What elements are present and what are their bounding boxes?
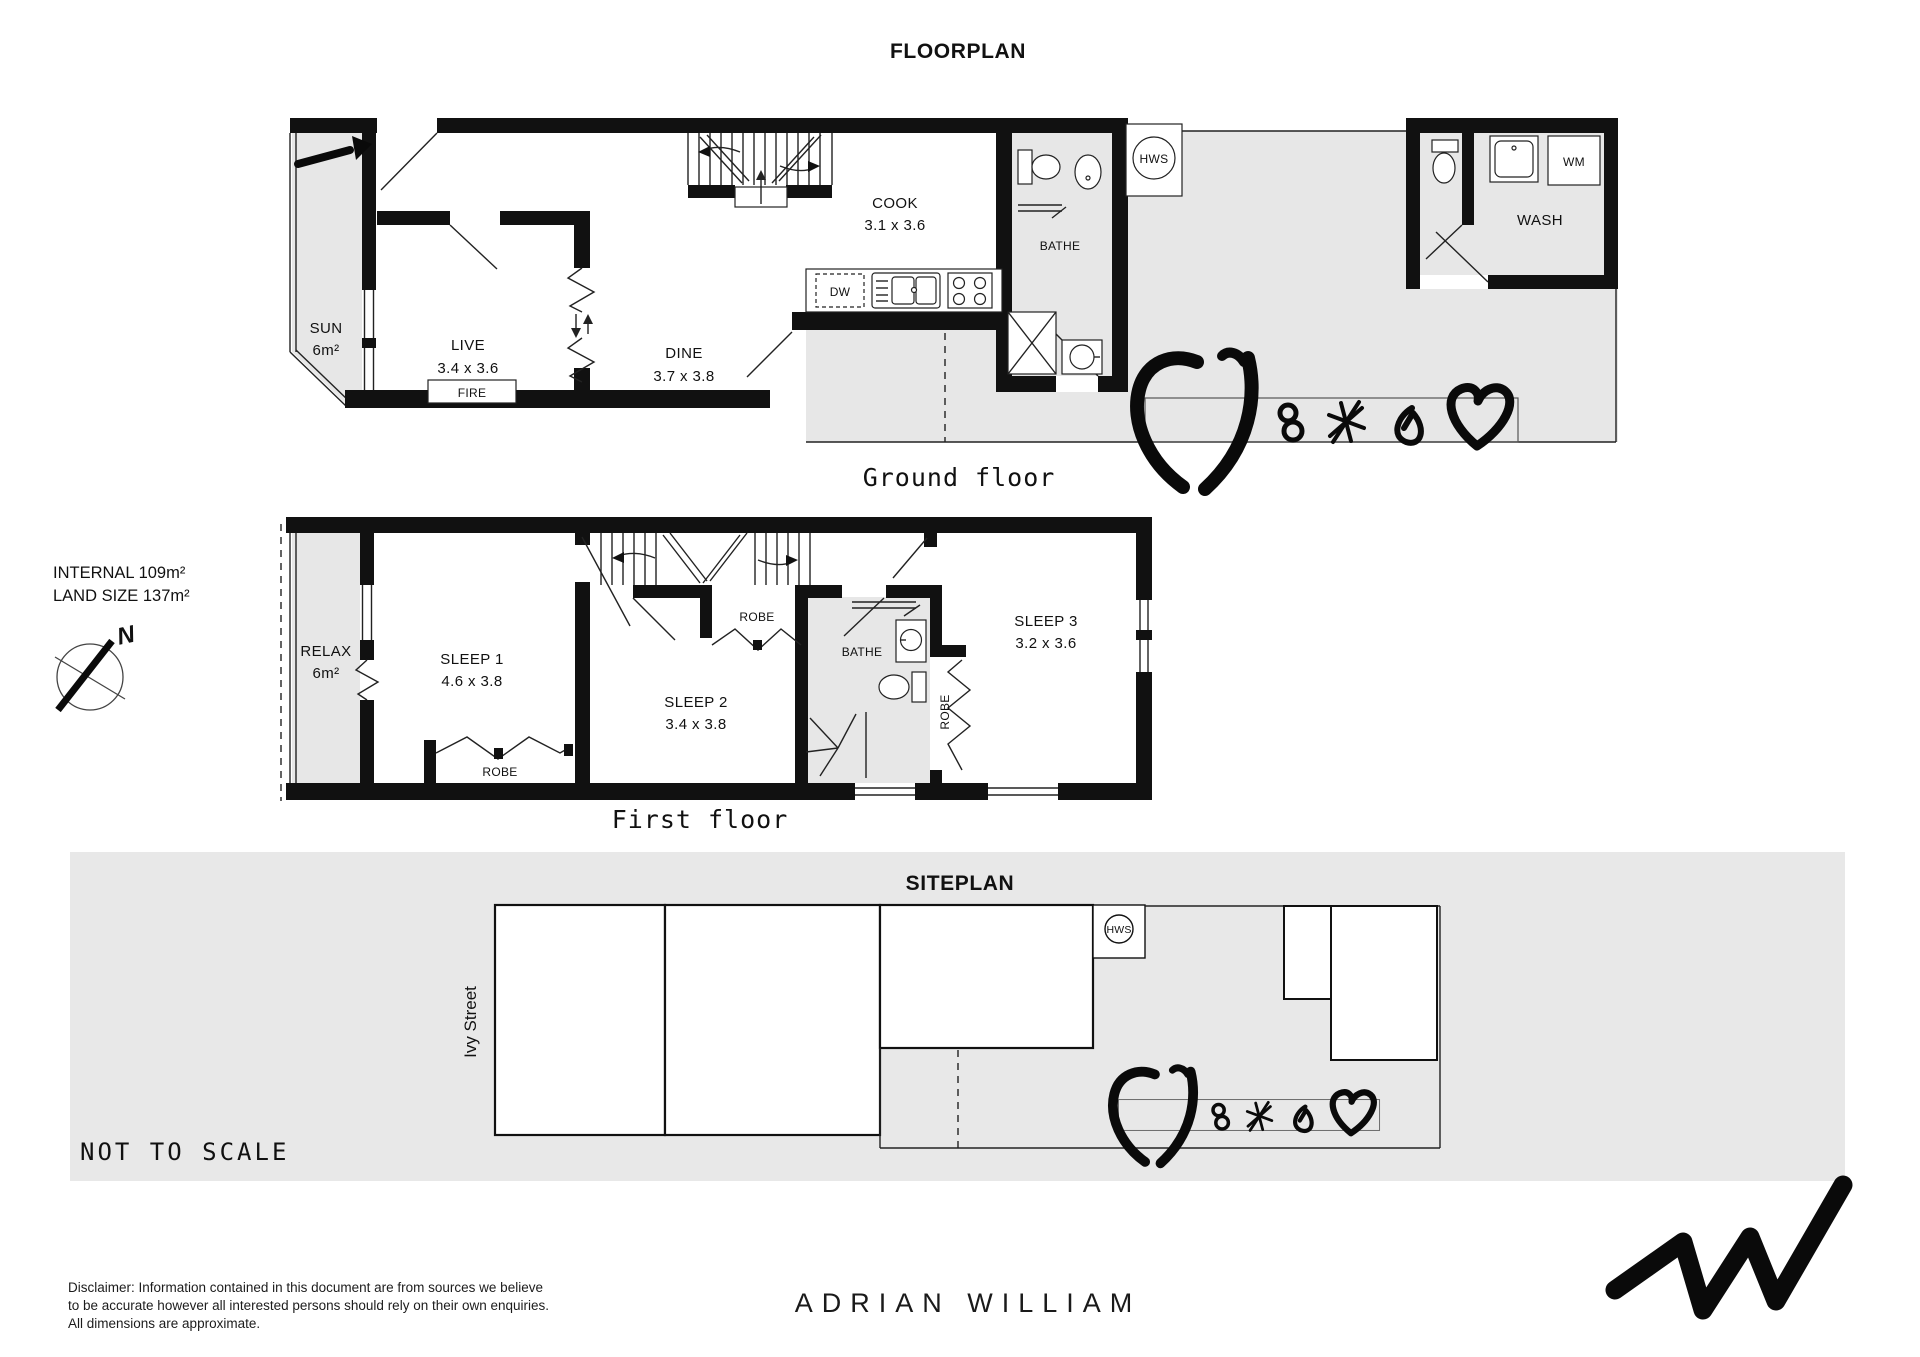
ground-floor-plan: DW (290, 118, 1618, 492)
not-to-scale-label: NOT TO SCALE (80, 1138, 289, 1166)
area-summary: INTERNAL 109m² LAND SIZE 137m² (53, 564, 190, 605)
room-label-wash: WASH (1517, 212, 1563, 229)
room-label-sun: SUN (310, 320, 343, 337)
ground-floor-caption: Ground floor (863, 463, 1056, 492)
land-size-label: LAND SIZE 137m² (53, 587, 190, 605)
dim-label-sleep2: 3.4 x 3.8 (665, 716, 726, 733)
fireplace-label: FIRE (458, 386, 487, 400)
fireplace: FIRE (428, 380, 516, 403)
washing-machine-label: WM (1563, 155, 1585, 169)
courtyard-area (806, 330, 996, 442)
live-door-leaf (450, 225, 497, 269)
room-label-sleep3: SLEEP 3 (1014, 613, 1077, 630)
room-label-cook: COOK (872, 195, 918, 212)
first-floor-caption: First floor (612, 805, 789, 834)
site-subject-house (880, 905, 1093, 1048)
room-label-sleep1: SLEEP 1 (440, 651, 503, 668)
dine-courtyard-door-leaf (747, 332, 792, 377)
room-label-sleep2: SLEEP 2 (664, 694, 727, 711)
room-label-dine: DINE (665, 345, 702, 362)
rear-yard-area (1406, 289, 1618, 442)
siteplan: SITEPLAN Ivy Street HWS NOT TO SCALE (70, 852, 1845, 1181)
page-title: FLOORPLAN (890, 40, 1026, 63)
robe1-label: ROBE (482, 765, 517, 779)
toilet-icon (1018, 150, 1032, 184)
dim-label-sleep1: 4.6 x 3.8 (441, 673, 502, 690)
dim-label-sleep3: 3.2 x 3.6 (1015, 635, 1076, 652)
siteplan-title: SITEPLAN (906, 872, 1015, 895)
ground-stairs (688, 133, 832, 207)
dim-label-live: 3.4 x 3.6 (437, 360, 498, 377)
area-label-relax: 6m² (312, 665, 339, 682)
internal-area-label: INTERNAL 109m² (53, 564, 186, 582)
dishwasher-label: DW (830, 285, 851, 299)
sun-room-area (292, 133, 362, 406)
compass-icon: N (55, 621, 138, 710)
hws-label: HWS (1140, 152, 1169, 166)
sleep3-door-leaf (893, 538, 927, 578)
first-floor-plan: ROBE ROBE ROBE RE (281, 517, 1152, 834)
toilet-icon-1f (912, 672, 926, 702)
site-neighbor-1 (1284, 906, 1331, 999)
front-door-leaf (381, 133, 437, 190)
room-label-relax: RELAX (300, 643, 351, 660)
floorplan-document: FLOORPLAN (0, 0, 1920, 1357)
disclaimer-line-3: All dimensions are approximate. (68, 1316, 260, 1331)
sleep1-robe: ROBE (424, 737, 573, 783)
courtyard-area2 (996, 392, 1128, 442)
basin-icon (1075, 155, 1101, 189)
dim-label-cook: 3.1 x 3.6 (864, 217, 925, 234)
wc-toilet-icon (1432, 140, 1458, 152)
robe3-label: ROBE (938, 694, 952, 729)
room-label-live: LIVE (451, 337, 485, 354)
sleep2-door-leaf (633, 598, 675, 640)
robe2-label: ROBE (739, 610, 774, 624)
brand-logo: ADRIAN WILLIAM (795, 1288, 1142, 1318)
disclaimer-line-2: to be accurate however all interested pe… (68, 1298, 549, 1313)
room-label-bathe-gf: BATHE (1040, 239, 1081, 253)
hws-unit: HWS (1126, 124, 1182, 196)
site-lot-1 (495, 905, 665, 1135)
bifold-symbol-upper (568, 268, 594, 312)
dim-label-dine: 3.7 x 3.8 (653, 368, 714, 385)
street-label: Ivy Street (461, 986, 480, 1058)
north-label: N (115, 621, 138, 651)
kitchen-bench: DW (806, 269, 1002, 312)
site-lot-2 (665, 905, 880, 1135)
room-label-bathe-1f: BATHE (842, 645, 883, 659)
site-neighbor-2 (1331, 906, 1437, 1060)
north-needle (58, 641, 112, 710)
brand-zigzag-mark-icon (1615, 1185, 1843, 1310)
footer: Disclaimer: Information contained in thi… (68, 1185, 1843, 1331)
area-label-sun: 6m² (312, 342, 339, 359)
floorplan-drawing: FLOORPLAN (0, 0, 1920, 1357)
sleep2-robe: ROBE (700, 598, 801, 650)
site-hws-label: HWS (1106, 924, 1131, 936)
disclaimer-line-1: Disclaimer: Information contained in thi… (68, 1280, 543, 1295)
first-floor-stairs (601, 533, 810, 585)
